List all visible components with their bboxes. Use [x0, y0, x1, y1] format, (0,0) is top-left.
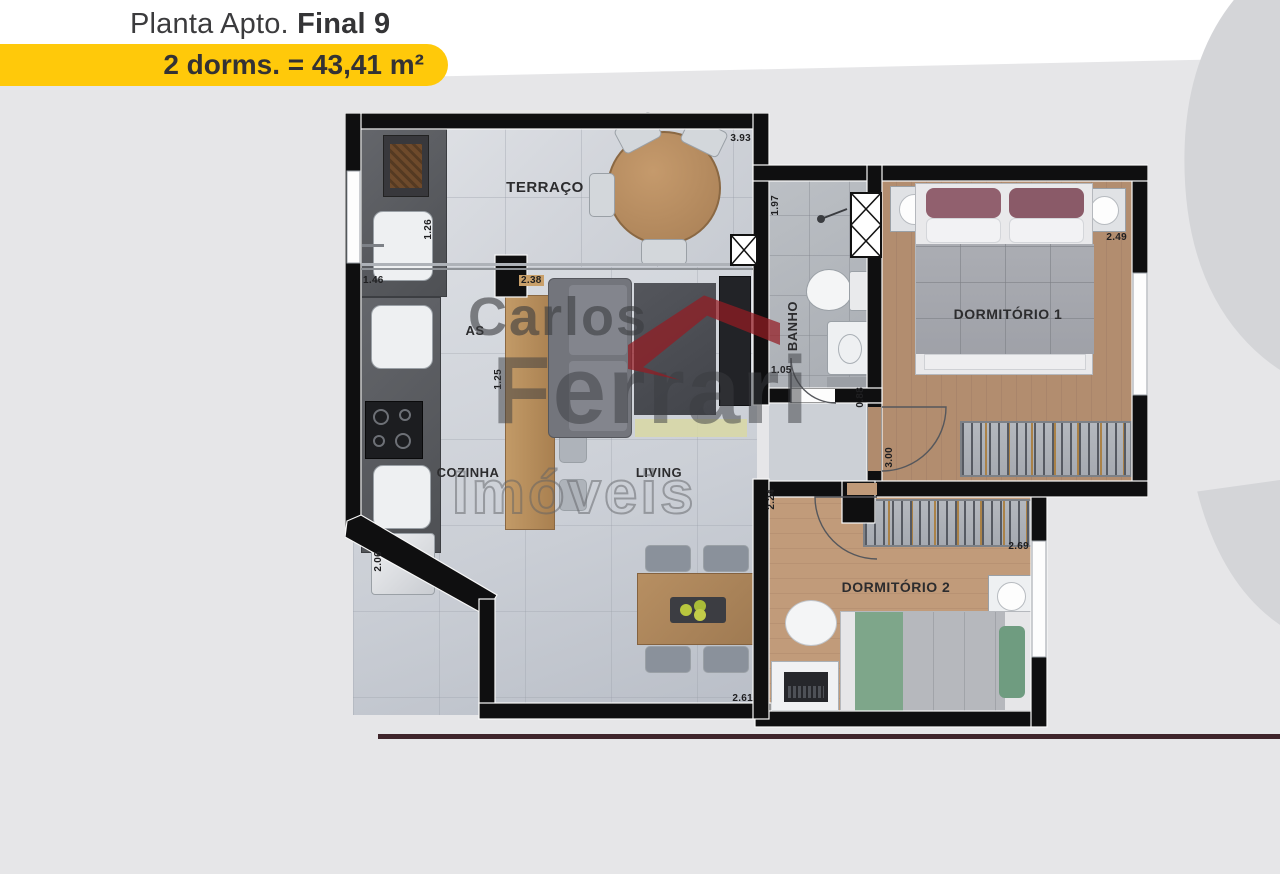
dining-chair [703, 646, 749, 673]
dim-living-width: 2.61 [713, 693, 753, 704]
room-label-as: AS [455, 323, 495, 338]
toilet-tank [849, 271, 871, 311]
dim-island-length: 2.38 [519, 275, 544, 286]
room-label-dorm2: DORMITÓRIO 2 [813, 579, 979, 595]
basin [838, 334, 862, 364]
burner [373, 409, 389, 425]
dining-table [637, 573, 757, 645]
dim-terraco-counter: 1.26 [423, 219, 434, 240]
green-pillow [999, 626, 1025, 698]
dim-hall-width: 0.88 [855, 387, 866, 408]
green-blanket [855, 612, 903, 712]
toilet [806, 269, 852, 311]
duvet [903, 612, 1005, 712]
room-label-dorm1: DORMITÓRIO 1 [923, 306, 1093, 322]
duvet [916, 244, 1094, 354]
watermark-number: 9 [1148, 0, 1280, 812]
desk [771, 661, 839, 711]
page-title: Planta Apto. Final 9 [130, 8, 390, 41]
fruit [680, 604, 692, 616]
dining-chair [645, 545, 691, 572]
terraco-chair [641, 239, 687, 265]
sofa-cushion [569, 285, 627, 355]
burner [395, 433, 411, 449]
dim-island-side: 1.25 [493, 369, 504, 390]
cooktop [365, 401, 423, 459]
dim-terraco-width: 3.93 [701, 133, 751, 144]
room-label-banho: BANHO [785, 301, 800, 351]
page-title-emphasis: Final 9 [297, 8, 390, 40]
wardrobe-dorm1 [960, 421, 1132, 477]
dim-banho-length: 1.97 [770, 195, 781, 216]
room-label-terraco: TERRAÇO [493, 179, 597, 196]
page-title-prefix: Planta Apto. [130, 8, 297, 40]
dim-dorm1-length: 3.00 [884, 447, 895, 468]
pillow [926, 218, 1001, 243]
sofa [548, 278, 632, 438]
dining-chair [703, 545, 749, 572]
hall-floor [769, 395, 869, 485]
terraco-faucet [362, 244, 384, 247]
fruit [694, 609, 706, 621]
dim-dorm2-side: 2.24 [766, 489, 777, 510]
dim-dorm1-width: 2.49 [1085, 232, 1127, 243]
dim-as-width: 1.46 [363, 275, 384, 286]
burner [373, 435, 385, 447]
desk-chair [785, 600, 837, 646]
keyboard [788, 686, 824, 698]
tv-cabinet [719, 276, 751, 406]
pillow [1009, 188, 1084, 218]
bed-foot-fold [924, 354, 1086, 370]
pillow [1009, 218, 1084, 243]
room-label-living: LIVING [613, 465, 705, 480]
single-bed [840, 611, 1032, 711]
pillow [926, 188, 1001, 218]
dim-cozinha-length: 2.06 [373, 551, 384, 572]
bottom-strip [378, 734, 1280, 739]
dim-dorm2-width: 2.69 [983, 541, 1029, 552]
area-badge: 2 dorms. = 43,41 m² [0, 44, 448, 86]
dim-banho-width: 1.05 [771, 365, 792, 376]
page-background: { "header": { "title_prefix": "Planta Ap… [0, 0, 1280, 739]
grill [383, 135, 429, 197]
floor-plan: TERRAÇO AS BANHO DORMITÓRIO 1 COZINHA LI… [345, 113, 1148, 735]
lamp [1090, 196, 1119, 225]
grill-coals [390, 144, 422, 188]
fruit-tray [670, 597, 726, 623]
lamp [997, 582, 1026, 611]
room-label-cozinha: COZINHA [422, 465, 514, 480]
laptop [784, 672, 828, 702]
stool [559, 479, 587, 511]
laundry-sink [371, 305, 433, 369]
wardrobe-dorm2 [863, 499, 1033, 547]
double-bed [915, 183, 1093, 375]
bathroom-vanity [827, 321, 871, 375]
sofa-cushion [569, 361, 627, 431]
accent-runner [635, 419, 747, 437]
burner [399, 409, 411, 421]
dining-chair [645, 646, 691, 673]
